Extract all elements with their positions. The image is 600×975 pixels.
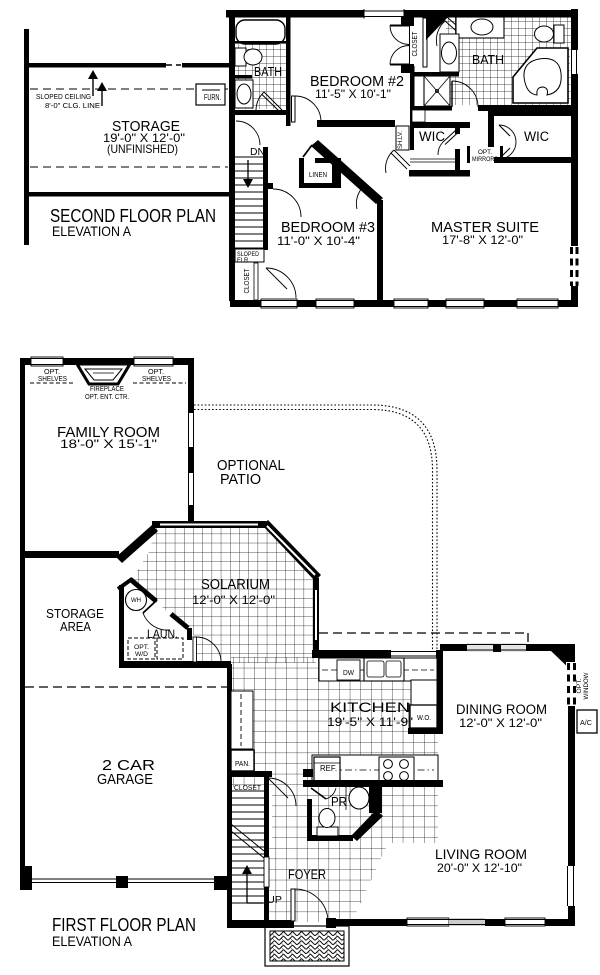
svg-text:FURN.: FURN.	[204, 93, 221, 102]
svg-text:WH: WH	[131, 598, 141, 604]
svg-text:DW: DW	[343, 670, 354, 677]
svg-text:BATH: BATH	[254, 65, 282, 79]
svg-text:W.O.: W.O.	[417, 715, 431, 722]
svg-text:(UNFINISHED): (UNFINISHED)	[107, 142, 178, 156]
svg-text:A/C: A/C	[580, 718, 593, 727]
svg-text:UP: UP	[267, 894, 282, 906]
svg-text:KITCHEN: KITCHEN	[330, 699, 410, 715]
svg-text:FIRST FLOOR PLAN: FIRST FLOOR PLAN	[52, 915, 196, 935]
svg-text:GARAGE: GARAGE	[97, 771, 153, 788]
svg-text:PAN.: PAN.	[235, 759, 250, 768]
svg-text:SH.LV.: SH.LV.	[398, 131, 404, 149]
svg-text:SLOPED CEILING: SLOPED CEILING	[36, 92, 91, 101]
svg-text:LIVING ROOM: LIVING ROOM	[435, 846, 527, 862]
svg-text:ELEVATION A: ELEVATION A	[52, 933, 133, 949]
svg-text:SHELVES: SHELVES	[38, 376, 67, 383]
svg-text:12'-0" X 12'-0": 12'-0" X 12'-0"	[192, 593, 275, 607]
svg-text:LINEN: LINEN	[309, 172, 327, 179]
svg-text:20'-0" X 12'-10": 20'-0" X 12'-10"	[437, 861, 522, 875]
svg-text:CLOSET: CLOSET	[412, 31, 419, 57]
svg-text:19'-5" X 11'-9": 19'-5" X 11'-9"	[327, 715, 413, 729]
svg-text:REF.: REF.	[320, 764, 337, 773]
svg-text:SOLARIUM: SOLARIUM	[201, 577, 270, 593]
svg-text:LAUN.: LAUN.	[147, 627, 178, 641]
svg-text:DINING ROOM: DINING ROOM	[456, 702, 547, 717]
svg-text:DN: DN	[250, 146, 265, 158]
svg-text:11'-0" X 10'-4": 11'-0" X 10'-4"	[277, 234, 360, 248]
svg-text:OPT.: OPT.	[576, 678, 583, 693]
svg-text:FLR.: FLR.	[237, 258, 250, 264]
svg-text:8'-0" CLG. LINE: 8'-0" CLG. LINE	[45, 101, 100, 110]
svg-text:OPT.: OPT.	[44, 369, 60, 376]
svg-text:OPT. ENT. CTR.: OPT. ENT. CTR.	[85, 394, 129, 401]
svg-text:FIREPLACE: FIREPLACE	[90, 386, 124, 393]
svg-text:PR: PR	[331, 794, 347, 809]
svg-text:W/D: W/D	[135, 651, 148, 658]
svg-text:WIC: WIC	[524, 129, 549, 144]
svg-text:WINDOW: WINDOW	[583, 672, 590, 700]
svg-text:18'-0" X 15'-1": 18'-0" X 15'-1"	[60, 437, 157, 451]
svg-text:OPT.: OPT.	[478, 149, 492, 156]
svg-text:OPT.: OPT.	[148, 369, 164, 376]
svg-text:12'-0" X 12'-0": 12'-0" X 12'-0"	[459, 716, 542, 730]
svg-text:SHELVES: SHELVES	[142, 376, 171, 383]
svg-text:17'-8" X 12'-0": 17'-8" X 12'-0"	[442, 233, 523, 247]
svg-text:CLOSET: CLOSET	[244, 268, 251, 294]
svg-text:11'-5" X 10'-1": 11'-5" X 10'-1"	[315, 87, 391, 101]
svg-text:AREA: AREA	[60, 619, 91, 634]
svg-text:BATH: BATH	[472, 53, 504, 67]
svg-text:WIC: WIC	[419, 129, 445, 144]
svg-text:PATIO: PATIO	[220, 471, 261, 488]
svg-text:OPT.: OPT.	[134, 644, 149, 651]
svg-text:FOYER: FOYER	[288, 867, 326, 882]
svg-text:ELEVATION A: ELEVATION A	[52, 223, 132, 239]
